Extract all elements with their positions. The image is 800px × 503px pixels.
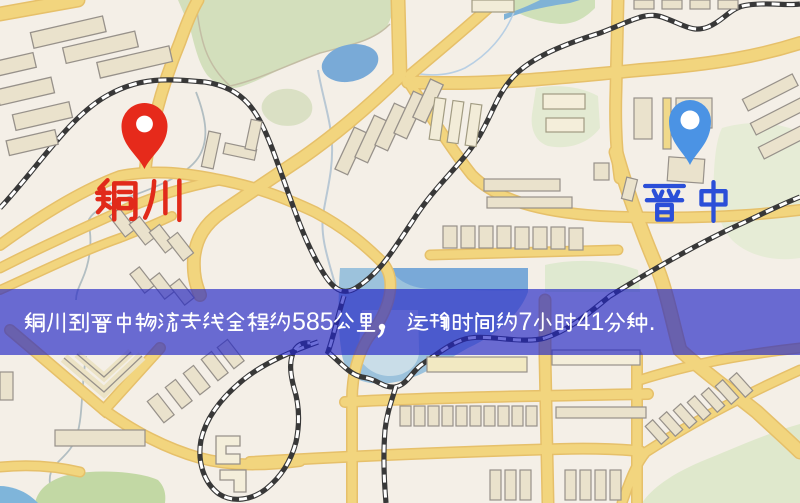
svg-text:585: 585	[292, 308, 334, 336]
svg-text:.: .	[649, 308, 656, 336]
svg-text:7: 7	[519, 308, 533, 336]
svg-text:41: 41	[577, 308, 605, 336]
